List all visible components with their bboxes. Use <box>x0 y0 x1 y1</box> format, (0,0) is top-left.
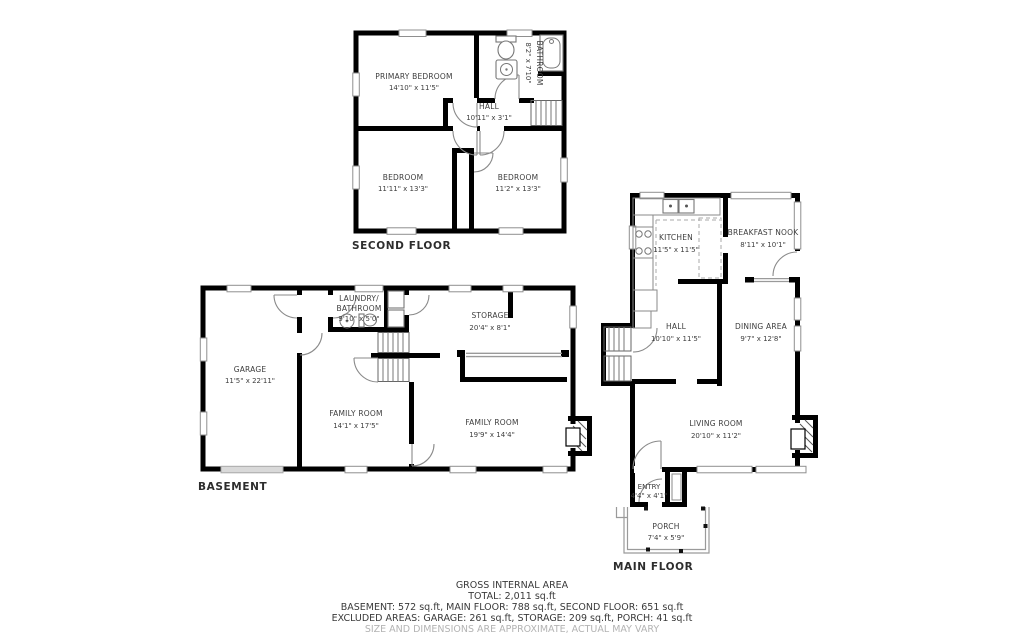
basement-plan: GARAGE 11'5" x 22'11" LAUNDRY/ BATHROOM … <box>198 285 592 493</box>
room-label-nook: BREAKFAST NOOK <box>728 228 800 237</box>
washer-icon <box>388 291 404 308</box>
room-dims-bedroom-right: 11'2" x 13'3" <box>495 185 541 193</box>
room-label-primary-bedroom: PRIMARY BEDROOM <box>375 72 452 81</box>
fireplace-icon-main <box>791 429 805 449</box>
summary-excluded-areas: EXCLUDED AREAS: GARAGE: 261 sq.ft, STORA… <box>332 613 693 624</box>
room-label-bedroom-right: BEDROOM <box>498 173 539 182</box>
room-label-family-mid: FAMILY ROOM <box>329 409 382 418</box>
room-dims-hall-main: 10'10" x 11'5" <box>651 335 701 343</box>
garage-door <box>221 466 283 473</box>
room-label-hall2: HALL <box>479 102 500 111</box>
floor-title-basement: BASEMENT <box>198 481 267 493</box>
room-label-living: LIVING ROOM <box>689 419 742 428</box>
room-dims-hall2: 10'11" x 3'1" <box>466 114 512 122</box>
summary-disclaimer: SIZE AND DIMENSIONS ARE APPROXIMATE, ACT… <box>365 624 660 635</box>
room-dims-bathroom: 8'2" x 7'10" <box>524 42 532 83</box>
room-label-kitchen: KITCHEN <box>659 233 693 242</box>
room-dims-laundry: 9'10" x 5'0" <box>338 315 379 323</box>
room-dims-family-right: 19'9" x 14'4" <box>469 431 515 439</box>
room-label-garage: GARAGE <box>234 365 267 374</box>
summary-heading: GROSS INTERNAL AREA <box>456 580 569 591</box>
summary-total: TOTAL: 2,011 sq.ft <box>467 591 556 602</box>
room-dims-living: 20'10" x 11'2" <box>691 432 741 440</box>
room-label-porch: PORCH <box>652 522 679 531</box>
room-dims-kitchen: 11'5" x 11'5" <box>653 246 699 254</box>
dryer-icon <box>388 310 404 327</box>
room-dims-nook: 8'11" x 10'1" <box>740 241 786 249</box>
room-label-bathroom: BATHROOM <box>535 40 544 85</box>
room-dims-dining: 9'7" x 12'8" <box>740 335 781 343</box>
floor-plan-canvas: PRIMARY BEDROOM 14'10" x 11'5" BATHROOM … <box>0 0 1024 639</box>
room-label-hall-main: HALL <box>666 322 687 331</box>
room-dims-garage: 11'5" x 22'11" <box>225 377 275 385</box>
room-label-dining: DINING AREA <box>735 322 788 331</box>
room-dims-porch: 7'4" x 5'9" <box>648 534 685 542</box>
second-floor-plan: PRIMARY BEDROOM 14'10" x 11'5" BATHROOM … <box>352 30 567 252</box>
room-dims-entry: 4'4" x 4'1" <box>631 492 668 500</box>
room-label-laundry-line1: LAUNDRY/ <box>339 294 379 303</box>
fireplace-icon <box>566 428 580 446</box>
floor-title-second: SECOND FLOOR <box>352 240 451 252</box>
room-label-entry: ENTRY <box>638 483 661 491</box>
room-label-laundry-line2: BATHROOM <box>336 304 381 313</box>
floor-title-main: MAIN FLOOR <box>613 561 693 573</box>
room-label-family-right: FAMILY ROOM <box>465 418 518 427</box>
room-dims-primary-bedroom: 14'10" x 11'5" <box>389 84 439 92</box>
room-dims-bedroom-left: 11'11" x 13'3" <box>378 185 428 193</box>
room-dims-storage: 20'4" x 8'1" <box>469 324 510 332</box>
room-label-bedroom-left: BEDROOM <box>383 173 424 182</box>
room-dims-family-mid: 14'1" x 17'5" <box>333 422 379 430</box>
summary-floor-areas: BASEMENT: 572 sq.ft, MAIN FLOOR: 788 sq.… <box>341 602 684 613</box>
room-label-storage: STORAGE <box>471 311 508 320</box>
